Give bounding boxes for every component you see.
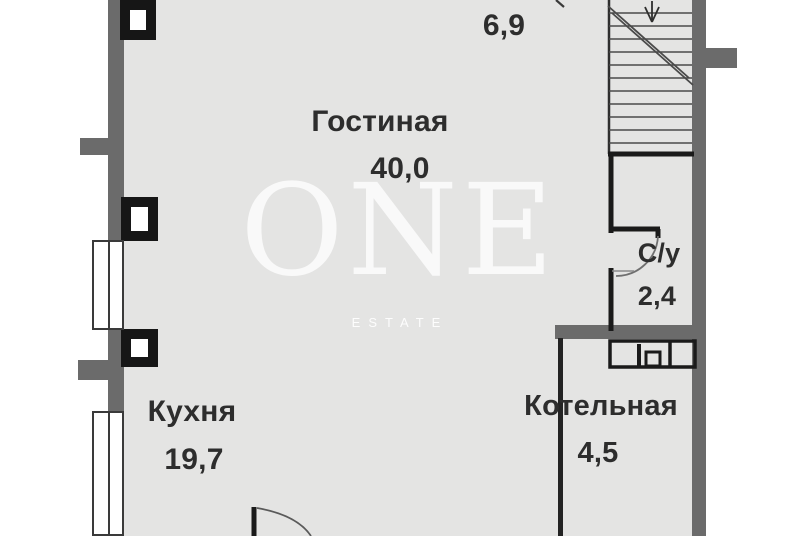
column-middle <box>121 197 158 241</box>
living-room-name-label: Гостиная <box>295 106 465 138</box>
hall-area-label: 6,9 <box>468 10 540 42</box>
window-upper <box>92 240 124 330</box>
wall-stub-left-lower <box>78 360 110 380</box>
boiler-room-area-label: 4,5 <box>558 438 638 468</box>
living-room-area-label: 40,0 <box>330 153 470 185</box>
wall-right <box>692 0 706 536</box>
column-top <box>120 0 156 40</box>
wall-stub-right <box>706 48 737 68</box>
kitchen-name-label: Кухня <box>118 396 266 428</box>
column-lower <box>121 329 158 367</box>
bathroom-name-label: С/у <box>622 239 696 267</box>
boiler-room-name-label: Котельная <box>505 391 697 421</box>
wall-stub-left-upper <box>80 138 110 155</box>
wall-boiler-top <box>555 325 705 339</box>
watermark-brand-text: ONE <box>238 168 560 294</box>
floor-plan: ONE ESTATE <box>0 0 805 536</box>
bathroom-area-label: 2,4 <box>620 282 694 310</box>
window-lower <box>92 411 124 536</box>
kitchen-area-label: 19,7 <box>130 444 258 476</box>
wall-kitchen-boiler-divider <box>558 338 563 536</box>
watermark-subtitle-text: ESTATE <box>330 315 470 330</box>
